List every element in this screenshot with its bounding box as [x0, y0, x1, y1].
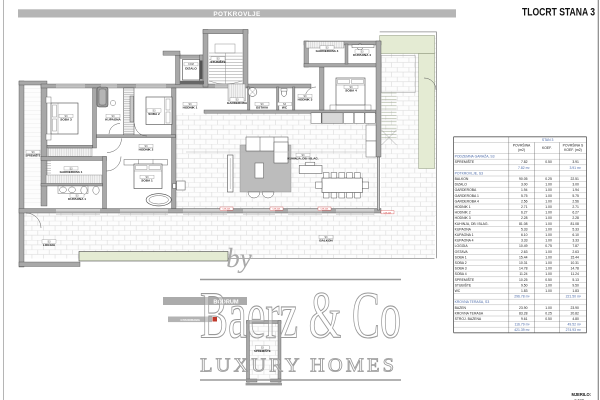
svg-text:1.00: 1.00 — [545, 188, 552, 192]
svg-text:6.10: 6.10 — [521, 233, 528, 237]
svg-text:KUPAONA 4: KUPAONA 4 — [353, 53, 371, 57]
svg-text:9.50: 9.50 — [521, 283, 528, 287]
svg-text:LOGGIA: LOGGIA — [43, 243, 56, 247]
svg-text:23.90: 23.90 — [570, 306, 579, 310]
svg-text:TLOCRT STANA 3: TLOCRT STANA 3 — [522, 6, 595, 18]
svg-text:3.00: 3.00 — [572, 183, 579, 187]
svg-text:DIZALO: DIZALO — [455, 183, 468, 187]
svg-text:STUBIŠTE: STUBIŠTE — [210, 59, 225, 64]
svg-text:1.00: 1.00 — [545, 216, 552, 220]
svg-text:KOEF. (m2): KOEF. (m2) — [564, 148, 582, 152]
svg-text:KUPAONA 1: KUPAONA 1 — [455, 233, 474, 237]
svg-text:5.33: 5.33 — [572, 227, 579, 231]
svg-text:0.50: 0.50 — [545, 160, 552, 164]
svg-text:SOBA 1: SOBA 1 — [455, 255, 467, 259]
svg-text:POVRŠINA S: POVRŠINA S — [563, 143, 584, 148]
svg-text:KUPAONA 1: KUPAONA 1 — [68, 197, 86, 201]
svg-text:296.78 m²: 296.78 m² — [514, 295, 530, 299]
svg-text:9.61: 9.61 — [521, 317, 528, 321]
svg-text:23.90: 23.90 — [519, 306, 528, 310]
svg-text:KROVNA TERASA: KROVNA TERASA — [455, 311, 484, 315]
svg-text:STAN 3: STAN 3 — [542, 138, 554, 142]
svg-text:2.71: 2.71 — [572, 205, 579, 209]
svg-text:90.05: 90.05 — [519, 177, 528, 181]
svg-text:GARDEROBA: GARDEROBA — [455, 188, 477, 192]
svg-text:0.50: 0.50 — [545, 278, 552, 282]
svg-text:SOBA 2: SOBA 2 — [455, 261, 467, 265]
svg-text:49.52 m²: 49.52 m² — [568, 323, 582, 327]
svg-text:5.33: 5.33 — [521, 227, 528, 231]
svg-text:0.25: 0.25 — [545, 311, 552, 315]
svg-text:1.00: 1.00 — [545, 289, 552, 293]
svg-text:2.63: 2.63 — [521, 250, 528, 254]
svg-text:KROVNA TERASA, S3: KROVNA TERASA, S3 — [455, 300, 490, 304]
svg-text:1.00: 1.00 — [545, 261, 552, 265]
svg-text:1.00: 1.00 — [545, 306, 552, 310]
svg-text:7.82 m²: 7.82 m² — [518, 166, 530, 170]
svg-text:9.50: 9.50 — [572, 283, 579, 287]
svg-text:1.00: 1.00 — [545, 183, 552, 187]
svg-text:POTKROVLJE: POTKROVLJE — [213, 11, 261, 18]
svg-text:0.75: 0.75 — [545, 244, 552, 248]
svg-text:2.28: 2.28 — [572, 216, 579, 220]
svg-text:421.39 m²: 421.39 m² — [514, 328, 530, 332]
svg-text:2.56: 2.56 — [521, 199, 528, 203]
svg-text:GARDEROBA 1: GARDEROBA 1 — [455, 194, 479, 198]
svg-text:15.44: 15.44 — [570, 255, 579, 259]
svg-text:1.00: 1.00 — [545, 205, 552, 209]
svg-text:10.31: 10.31 — [570, 261, 579, 265]
svg-text:GARDEROBA 4: GARDEROBA 4 — [455, 199, 479, 203]
svg-text:1.00: 1.00 — [545, 194, 552, 198]
svg-text:0.50: 0.50 — [545, 317, 552, 321]
svg-text:SOBA 1: SOBA 1 — [141, 179, 153, 183]
svg-text:GARDEROBA 4: GARDEROBA 4 — [316, 49, 339, 53]
svg-text:1.94: 1.94 — [521, 188, 528, 192]
svg-text:6.27: 6.27 — [572, 211, 579, 215]
svg-text:GARDEROBA 1: GARDEROBA 1 — [60, 170, 83, 174]
svg-text:1.00: 1.00 — [545, 250, 552, 254]
svg-text:3.33: 3.33 — [521, 239, 528, 243]
svg-text:KUPAONA 4: KUPAONA 4 — [455, 239, 474, 243]
svg-text:KOEF.: KOEF. — [542, 146, 552, 150]
svg-text:BALKON: BALKON — [455, 177, 469, 181]
svg-text:HODNIK 1: HODNIK 1 — [183, 106, 198, 110]
svg-text:SOBA 2: SOBA 2 — [148, 112, 160, 116]
svg-text:KUHINJA, DB I BLAG.: KUHINJA, DB I BLAG. — [455, 222, 489, 226]
svg-text:2.56: 2.56 — [572, 199, 579, 203]
svg-text:BAZEN: BAZEN — [455, 306, 467, 310]
svg-text:1.00: 1.00 — [545, 199, 552, 203]
svg-text:STROJ. BAZENA: STROJ. BAZENA — [455, 317, 482, 321]
svg-text:1.00: 1.00 — [545, 211, 552, 215]
svg-text:1.00: 1.00 — [545, 272, 552, 276]
svg-text:SOBA 3: SOBA 3 — [60, 118, 72, 122]
svg-text:HODNIK 3: HODNIK 3 — [455, 216, 471, 220]
svg-text:6.10: 6.10 — [572, 233, 579, 237]
svg-text:3.00: 3.00 — [521, 183, 528, 187]
svg-text:11.24: 11.24 — [519, 272, 527, 276]
svg-text:10.49: 10.49 — [519, 244, 528, 248]
svg-text:10.31: 10.31 — [519, 261, 528, 265]
svg-text:1.00: 1.00 — [545, 255, 552, 259]
svg-text:1.00: 1.00 — [545, 227, 552, 231]
svg-text:SPREMIŠTE: SPREMIŠTE — [455, 277, 475, 282]
svg-text:1.00: 1.00 — [545, 233, 552, 237]
svg-text:BALKON: BALKON — [319, 239, 333, 243]
svg-text:0.25: 0.25 — [545, 177, 552, 181]
svg-text:274.93 m²: 274.93 m² — [566, 328, 582, 332]
svg-text:POVRŠINA: POVRŠINA — [513, 143, 531, 148]
svg-text:10.25: 10.25 — [519, 278, 528, 282]
svg-text:GARDEROBA: GARDEROBA — [227, 101, 248, 105]
svg-text:2.28: 2.28 — [521, 216, 528, 220]
svg-text:1.00: 1.00 — [545, 222, 552, 226]
svg-text:LOGGIA: LOGGIA — [455, 244, 469, 248]
svg-text:MJERILO:: MJERILO: — [571, 392, 591, 397]
svg-text:2.63: 2.63 — [572, 250, 579, 254]
svg-text:5.13: 5.13 — [572, 278, 579, 282]
svg-text:WC: WC — [282, 106, 288, 110]
svg-text:116.79 m²: 116.79 m² — [515, 323, 531, 327]
svg-text:SOBA 4: SOBA 4 — [345, 89, 357, 93]
svg-text:1.83: 1.83 — [572, 289, 579, 293]
svg-text:CW-101: CW-101 — [321, 209, 330, 211]
svg-text:HODNIK 2: HODNIK 2 — [455, 211, 471, 215]
svg-text:7.82: 7.82 — [521, 160, 528, 164]
svg-text:POTKROVLJE, S3: POTKROVLJE, S3 — [455, 171, 484, 175]
svg-text:14.78: 14.78 — [570, 267, 579, 271]
svg-text:5.75: 5.75 — [521, 194, 528, 198]
svg-text:SOBA 3: SOBA 3 — [455, 267, 467, 271]
svg-text:CW-101: CW-101 — [223, 209, 232, 211]
svg-text:CW-101: CW-101 — [384, 212, 393, 214]
svg-text:6.27: 6.27 — [521, 211, 528, 215]
svg-text:OSTAVA: OSTAVA — [455, 250, 469, 254]
svg-text:83.28: 83.28 — [519, 311, 528, 315]
svg-text:81.08: 81.08 — [570, 222, 579, 226]
svg-text:81.08: 81.08 — [519, 222, 528, 226]
svg-text:221.50 m²: 221.50 m² — [566, 295, 582, 299]
svg-text:HODNIK 3: HODNIK 3 — [298, 98, 313, 102]
svg-text:by: by — [226, 243, 252, 273]
svg-text:11.24: 11.24 — [571, 272, 579, 276]
svg-text:1.94: 1.94 — [572, 188, 579, 192]
svg-text:7.87: 7.87 — [572, 244, 579, 248]
svg-text:20.82: 20.82 — [570, 311, 579, 315]
svg-text:KUPAONA: KUPAONA — [105, 118, 121, 122]
svg-text:SPREMIŠTE: SPREMIŠTE — [455, 159, 475, 164]
svg-text:SOBA 4: SOBA 4 — [455, 272, 467, 276]
svg-text:WC: WC — [455, 289, 461, 293]
svg-text:2.71: 2.71 — [521, 205, 528, 209]
svg-text:1.00: 1.00 — [545, 283, 552, 287]
svg-text:4 PANORAMA: 4 PANORAMA — [180, 318, 201, 322]
svg-text:15.44: 15.44 — [519, 255, 528, 259]
svg-text:KUHINJA, DB I BLAG.: KUHINJA, DB I BLAG. — [287, 157, 318, 161]
svg-text:PODZEMNA GARAŽA, S3: PODZEMNA GARAŽA, S3 — [455, 154, 495, 159]
svg-text:5.75: 5.75 — [572, 194, 579, 198]
svg-text:3.91 m²: 3.91 m² — [569, 166, 581, 170]
svg-text:Baerz & Co: Baerz & Co — [200, 279, 401, 353]
svg-text:22.51: 22.51 — [570, 177, 579, 181]
svg-text:14.78: 14.78 — [519, 267, 528, 271]
svg-text:KUPAONA: KUPAONA — [455, 227, 472, 231]
svg-text:STUBIŠTE: STUBIŠTE — [455, 282, 472, 287]
svg-text:4.80: 4.80 — [572, 317, 579, 321]
svg-text:(m2): (m2) — [518, 148, 525, 152]
svg-text:OSTAVA: OSTAVA — [256, 106, 269, 110]
svg-text:DIZALO: DIZALO — [185, 67, 197, 71]
svg-text:1.00: 1.00 — [545, 267, 552, 271]
svg-text:HODNIK 1: HODNIK 1 — [455, 205, 471, 209]
svg-text:HODNIK 2: HODNIK 2 — [139, 148, 154, 152]
svg-text:3.33: 3.33 — [572, 239, 579, 243]
svg-text:3.91: 3.91 — [572, 160, 579, 164]
svg-text:1.00: 1.00 — [545, 239, 552, 243]
svg-text:CW-101: CW-101 — [273, 209, 282, 211]
svg-text:1.83: 1.83 — [521, 289, 528, 293]
